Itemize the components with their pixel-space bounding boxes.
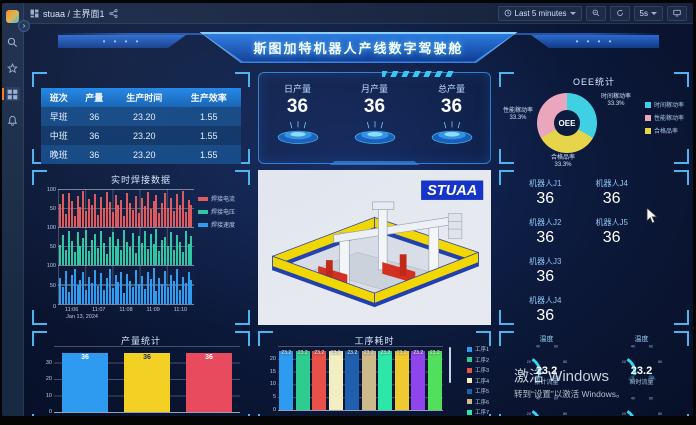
- svg-text:60: 60: [649, 396, 653, 400]
- legend-label: 工序3: [475, 366, 489, 374]
- table-header-cell: 班次: [41, 88, 76, 107]
- table-row: 中班3623.201.55: [41, 126, 241, 145]
- bar: [173, 281, 175, 304]
- legend-swatch: [198, 210, 208, 214]
- table-cell: 晚班: [41, 145, 76, 164]
- bar: [158, 251, 160, 265]
- monitor-bezel: › stuaa / 主界面1 Last 5 minutes 5s: [0, 0, 696, 425]
- bar: [129, 247, 131, 265]
- output-bars: 363636: [54, 346, 240, 412]
- zoom-out-button[interactable]: [586, 6, 606, 21]
- bar: [132, 210, 134, 226]
- y-tick: 0: [41, 304, 56, 310]
- bar: [82, 238, 84, 265]
- table-cell: 中班: [41, 126, 76, 145]
- share-icon[interactable]: [109, 9, 118, 18]
- bar: [188, 200, 190, 226]
- oee-chart: OEE 时间稼动率33.3% 性能稼动率33.3% 合格品率33.3% 时间稼动…: [501, 86, 687, 162]
- bar: [91, 283, 93, 304]
- legend-item: 工序1: [467, 345, 489, 353]
- table-row: 晚班3623.201.55: [41, 145, 241, 164]
- bar: 23.2: [312, 351, 326, 410]
- bar: [147, 192, 149, 226]
- bar: [71, 241, 73, 265]
- legend-swatch: [467, 410, 472, 415]
- legend-item: 焊接速度: [198, 220, 246, 229]
- breadcrumb-text[interactable]: stuaa / 主界面1: [43, 7, 105, 20]
- bar: [132, 233, 134, 265]
- kiosk-mode-button[interactable]: [667, 6, 687, 21]
- bar: 23.2: [411, 351, 425, 410]
- bar: [179, 290, 181, 304]
- breadcrumb[interactable]: stuaa / 主界面1: [30, 7, 118, 20]
- table-header-cell: 产量: [76, 88, 111, 107]
- y-tick: 50: [41, 283, 56, 289]
- legend-item: 工序7: [467, 408, 489, 416]
- bar: [141, 198, 143, 227]
- bar: [88, 251, 90, 265]
- bar: [155, 291, 157, 304]
- legend-item: 工序6: [467, 398, 489, 406]
- bar: [144, 289, 146, 304]
- robot-value: 36: [529, 307, 561, 325]
- bar: [176, 269, 178, 304]
- gauge-arc: 020406080100: [516, 394, 578, 416]
- time-range-label: Last 5 minutes: [515, 9, 567, 18]
- legend-scrollbar[interactable]: [449, 347, 451, 383]
- welding-panel: 实时焊接数据 100501005010050 Jan 13, 2024 11:0…: [32, 170, 250, 325]
- bar: [71, 275, 73, 304]
- y-tick: 10: [36, 393, 52, 399]
- oee-panel: OEE统计 OEE 时间稼动率33.3% 性能稼动率33.3% 合格品率33.3…: [499, 72, 689, 164]
- shift-table: 班次产量生产时间生产效率 早班3623.201.55中班3623.201.55晚…: [41, 88, 241, 164]
- bar: [103, 243, 105, 265]
- svg-text:40: 40: [535, 344, 539, 348]
- legend-swatch: [467, 357, 472, 362]
- x-tick: 11:10: [174, 307, 187, 313]
- svg-text:80: 80: [563, 412, 567, 416]
- bar: 23.2: [395, 351, 409, 410]
- bar: [190, 236, 192, 266]
- title-banner: • • • • • • • • 斯图加特机器人产线数字驾驶舱: [54, 30, 663, 68]
- oee-slice-label: 时间稼动率33.3%: [601, 94, 631, 108]
- bar: [62, 194, 64, 226]
- bar: [185, 283, 187, 304]
- bar: [77, 232, 79, 265]
- bar: [115, 275, 117, 304]
- bar: [123, 216, 125, 227]
- svg-text:80: 80: [658, 360, 662, 364]
- gauge-label: 瞬时流量: [629, 377, 653, 386]
- y-tick: 10: [262, 381, 276, 387]
- bar: [91, 240, 93, 266]
- bar: [94, 270, 96, 304]
- bar: [120, 200, 122, 227]
- dashboard-title: 斯图加特机器人产线数字驾驶舱: [202, 34, 515, 62]
- bar: [182, 252, 184, 265]
- output-chart: 3020100 363636: [54, 346, 240, 413]
- table-header-cell: 生产时间: [112, 88, 177, 107]
- platform-icon: [352, 119, 398, 145]
- bar: 23.2: [362, 351, 376, 410]
- bar: [68, 231, 70, 265]
- chevron-down-icon: [651, 12, 657, 15]
- process-bars: 23.223.223.223.223.223.223.223.223.223.2: [278, 346, 443, 410]
- robot-panel: 机器人J136机器人J236机器人J336机器人J436机器人J436机器人J5…: [499, 170, 689, 325]
- bar-group: [59, 190, 193, 227]
- bar: [150, 279, 152, 304]
- table-cell: 1.55: [176, 145, 241, 164]
- stat-value: 36: [364, 96, 385, 118]
- robot-stats: 机器人J136机器人J236机器人J336机器人J436机器人J436机器人J5…: [499, 170, 689, 325]
- oee-slice-label: 合格品率33.3%: [551, 155, 575, 169]
- bar: [155, 195, 157, 227]
- x-axis-date: Jan 13, 2024: [66, 314, 98, 320]
- table-cell: 23.20: [112, 126, 177, 145]
- bar: [106, 254, 108, 265]
- process-title: 工序耗时: [258, 331, 491, 347]
- notch-decoration: [330, 161, 420, 165]
- stat-label: 总产量: [438, 82, 465, 95]
- legend-label: 焊接速度: [211, 220, 235, 229]
- robot-column: 机器人J136机器人J236机器人J336机器人J436: [529, 178, 561, 325]
- bar: 23.2: [279, 351, 293, 410]
- bar: [129, 203, 131, 227]
- x-tick: 11:09: [147, 307, 160, 313]
- robot-stat: 机器人J436: [595, 178, 627, 208]
- bar: [147, 249, 149, 266]
- refresh-button[interactable]: [610, 6, 630, 21]
- bar: [164, 193, 166, 227]
- refresh-icon: [616, 9, 624, 17]
- bar: [144, 231, 146, 265]
- welding-subchart: 10050: [58, 228, 194, 267]
- bar: [138, 236, 140, 265]
- bar: [190, 280, 192, 304]
- output-panel: 产量统计 3020100 363636 当前产量今日计划产量剩余需完成产量: [32, 331, 250, 416]
- sidebar: [2, 3, 24, 416]
- bar: [167, 208, 169, 227]
- table-cell: 1.55: [176, 126, 241, 145]
- svg-text:80: 80: [658, 412, 662, 416]
- clock-icon: [504, 9, 512, 17]
- bar-value-label: 23.2: [425, 350, 445, 356]
- bar: [150, 209, 152, 227]
- gauge-grid: 温度02040608010023.2累计流量 温度02040608010023.…: [499, 331, 689, 416]
- bar-value-label: 36: [124, 354, 170, 361]
- bar: [144, 206, 146, 227]
- legend-item: 工序5: [467, 387, 489, 395]
- robot-stat: 机器人J136: [529, 178, 561, 208]
- gauge: 02040608010023.2: [499, 386, 594, 416]
- bar: 36: [124, 353, 170, 412]
- legend-swatch: [198, 197, 208, 201]
- bar: [109, 269, 111, 304]
- y-tick: 100: [41, 187, 56, 193]
- y-tick: 100: [41, 225, 56, 231]
- gauge: 温度02040608010023.2累计流量: [499, 334, 594, 386]
- welding-subchart: 10050: [58, 189, 194, 228]
- bar: [109, 237, 111, 266]
- svg-text:80: 80: [563, 360, 567, 364]
- svg-text:60: 60: [554, 396, 558, 400]
- gauge-label: 累计流量: [534, 377, 558, 386]
- gauge-title: 温度: [635, 334, 649, 342]
- bar: [153, 244, 155, 265]
- bar: [112, 212, 114, 227]
- robot-label: 机器人J3: [529, 256, 561, 267]
- y-tick: 20: [36, 376, 52, 382]
- legend-label: 合格品率: [654, 126, 678, 135]
- legend-label: 工序1: [475, 345, 489, 353]
- bar: [59, 204, 61, 227]
- process-panel: 工序耗时 20151050 23.223.223.223.223.223.223…: [258, 331, 491, 416]
- bar: [88, 277, 90, 304]
- bar: [179, 242, 181, 266]
- shift-table-head-row: 班次产量生产时间生产效率: [41, 88, 241, 107]
- bar: [188, 244, 190, 265]
- zoom-out-icon: [592, 9, 600, 17]
- bar: [126, 274, 128, 304]
- platform-icon: [429, 119, 475, 145]
- bar-value-label: 36: [62, 354, 108, 361]
- x-tick: 11:06: [65, 307, 78, 313]
- bar: [68, 193, 70, 227]
- legend-swatch: [645, 102, 651, 108]
- bar: [115, 195, 117, 227]
- legend-label: 工序6: [475, 398, 489, 406]
- bar: [182, 191, 184, 227]
- production-line-3d-model: STUAA: [258, 170, 491, 325]
- legend-label: 工序7: [475, 408, 489, 416]
- bar: [77, 285, 79, 304]
- bar: [129, 281, 131, 304]
- robot-label: 机器人J4: [595, 178, 627, 189]
- bar-group: [59, 228, 193, 266]
- bar: [161, 240, 163, 265]
- bar-group: [59, 266, 193, 304]
- legend-swatch: [198, 223, 208, 227]
- bar: [182, 277, 184, 304]
- bar: [150, 234, 152, 265]
- svg-text:40: 40: [535, 396, 539, 400]
- bar: [167, 246, 169, 265]
- welding-legend: 焊接电流焊接电压焊接速度: [198, 194, 246, 229]
- bar: [112, 288, 114, 304]
- y-tick: 30: [36, 360, 52, 366]
- oee-slice-label: 性能稼动率33.3%: [501, 108, 535, 122]
- y-tick: 15: [262, 369, 276, 375]
- bar: [135, 270, 137, 304]
- bar: [117, 205, 119, 226]
- topbar: stuaa / 主界面1 Last 5 minutes 5s: [24, 3, 693, 24]
- bar: [138, 213, 140, 227]
- legend-label: 工序5: [475, 387, 489, 395]
- bar: [123, 230, 125, 265]
- welding-subchart: 10050: [58, 266, 194, 305]
- bar: [82, 272, 84, 304]
- x-tick: 11:08: [119, 307, 132, 313]
- bar: 23.2: [428, 351, 442, 410]
- bar: 23.2: [296, 351, 310, 410]
- bar: [161, 284, 163, 304]
- bar: [164, 237, 166, 265]
- legend-item: 工序3: [467, 366, 489, 374]
- process-chart: 20151050 23.223.223.223.223.223.223.223.…: [278, 346, 443, 411]
- svg-text:20: 20: [526, 360, 530, 364]
- bar: [65, 214, 67, 227]
- legend-item: 合格品率: [645, 126, 684, 135]
- y-tick: 0: [262, 407, 276, 413]
- alerting-bell-icon[interactable]: [6, 113, 20, 127]
- bar: [173, 250, 175, 266]
- bar: [170, 232, 172, 265]
- bar: 36: [186, 353, 232, 412]
- table-cell: 23.20: [112, 145, 177, 164]
- bar: [85, 290, 87, 304]
- table-cell: 36: [76, 107, 111, 126]
- dashboard: • • • • • • • • 斯图加特机器人产线数字驾驶舱 班次产量生产时间生…: [24, 24, 693, 416]
- bar: [71, 201, 73, 227]
- dashboard-icon: [30, 9, 39, 18]
- time-range-picker[interactable]: Last 5 minutes: [498, 6, 582, 21]
- y-tick: 5: [262, 394, 276, 400]
- bar: [97, 248, 99, 265]
- robot-stat: 机器人J236: [529, 217, 561, 247]
- dashboards-icon[interactable]: [6, 87, 20, 101]
- bar: [77, 196, 79, 227]
- bar: [190, 205, 192, 226]
- bar: [117, 282, 119, 304]
- bar: [141, 276, 143, 304]
- bar: [97, 215, 99, 227]
- gauge: 温度02040608010023.2瞬时流量: [594, 334, 689, 386]
- gauge-arc: 020406080100: [611, 394, 673, 416]
- bar: [176, 235, 178, 265]
- hazard-stripes-decoration: [382, 71, 456, 77]
- bar: [91, 205, 93, 227]
- oee-legend: 时间稼动率性能稼动率合格品率: [645, 100, 684, 135]
- screen: › stuaa / 主界面1 Last 5 minutes 5s: [2, 3, 693, 416]
- bar: [126, 193, 128, 226]
- bar: [112, 232, 114, 265]
- bar: [170, 198, 172, 226]
- robot-column: 机器人J436机器人J536: [595, 178, 627, 325]
- robot-value: 36: [595, 229, 627, 247]
- legend-swatch: [645, 115, 651, 121]
- svg-text:20: 20: [526, 412, 530, 416]
- production-stat: 日产量36: [275, 82, 321, 163]
- bar: [153, 268, 155, 304]
- bar: [106, 192, 108, 227]
- robot-value: 36: [595, 190, 627, 208]
- legend-item: 焊接电压: [198, 207, 246, 216]
- bar: [103, 290, 105, 304]
- bar: [74, 252, 76, 265]
- legend-label: 焊接电流: [211, 194, 235, 203]
- shift-table-body: 早班3623.201.55中班3623.201.55晚班3623.201.55: [41, 107, 241, 164]
- stat-value: 36: [287, 96, 308, 118]
- bar: [161, 203, 163, 226]
- bar: [59, 278, 61, 304]
- legend-item: 焊接电流: [198, 194, 246, 203]
- model-view-panel: STUAA: [258, 170, 491, 325]
- bar: [179, 205, 181, 227]
- bar: [85, 230, 87, 266]
- table-cell: 36: [76, 126, 111, 145]
- svg-text:20: 20: [621, 360, 625, 364]
- legend-swatch: [467, 368, 472, 373]
- robot-value: 36: [529, 229, 561, 247]
- sidebar-expand-button[interactable]: ›: [18, 20, 30, 32]
- legend-swatch: [467, 399, 472, 404]
- star-icon[interactable]: [6, 61, 20, 75]
- bar: [155, 229, 157, 265]
- y-tick: 50: [41, 206, 56, 212]
- svg-text:20: 20: [621, 412, 625, 416]
- grafana-logo[interactable]: [6, 10, 19, 23]
- legend-item: 时间稼动率: [645, 100, 684, 109]
- bar: [97, 286, 99, 304]
- legend-swatch: [467, 389, 472, 394]
- bar: [94, 234, 96, 266]
- legend-label: 工序4: [475, 377, 489, 385]
- table-cell: 1.55: [176, 107, 241, 126]
- production-stats-panel: 日产量36月产量36总产量36: [258, 72, 491, 164]
- legend-label: 时间稼动率: [654, 100, 684, 109]
- bar: 23.2: [378, 351, 392, 410]
- legend-item: 工序2: [467, 356, 489, 364]
- process-legend: 工序1工序2工序3工序4工序5工序6工序7工序8工序9: [467, 345, 489, 416]
- bar: [188, 272, 190, 304]
- bar: [106, 278, 108, 304]
- monitor-icon: [673, 9, 681, 17]
- stat-label: 日产量: [284, 82, 311, 95]
- bar: [123, 293, 125, 304]
- banner-right-decoration: • • • •: [531, 35, 659, 48]
- gauge-title: 温度: [540, 334, 554, 342]
- bar: [65, 250, 67, 266]
- banner-left-decoration: • • • •: [58, 35, 186, 48]
- table-header-cell: 生产效率: [176, 88, 241, 107]
- search-icon[interactable]: [6, 35, 20, 49]
- legend-label: 焊接电压: [211, 207, 235, 216]
- bar: [185, 212, 187, 227]
- mouse-cursor: [646, 207, 658, 225]
- bar: [147, 272, 149, 304]
- bar: [100, 197, 102, 226]
- legend-label: 性能稼动率: [654, 113, 684, 122]
- bar: [103, 208, 105, 226]
- gauge-value: 23.2: [631, 365, 652, 377]
- robot-label: 机器人J4: [529, 295, 561, 306]
- bar: [74, 269, 76, 304]
- gauge: 02040608010023.2: [594, 386, 689, 416]
- table-cell: 早班: [41, 107, 76, 126]
- robot-label: 机器人J2: [529, 217, 561, 228]
- refresh-interval-dropdown[interactable]: 5s: [634, 6, 663, 21]
- bar: [126, 242, 128, 265]
- platform-icon: [275, 119, 321, 145]
- stat-label: 月产量: [361, 82, 388, 95]
- robot-label: 机器人J1: [529, 178, 561, 189]
- bar: [100, 273, 102, 304]
- bar: [185, 231, 187, 265]
- y-tick: 20: [262, 356, 276, 362]
- svg-text:60: 60: [649, 344, 653, 348]
- welding-plot: 100501005010050: [58, 189, 194, 305]
- bar: [117, 239, 119, 265]
